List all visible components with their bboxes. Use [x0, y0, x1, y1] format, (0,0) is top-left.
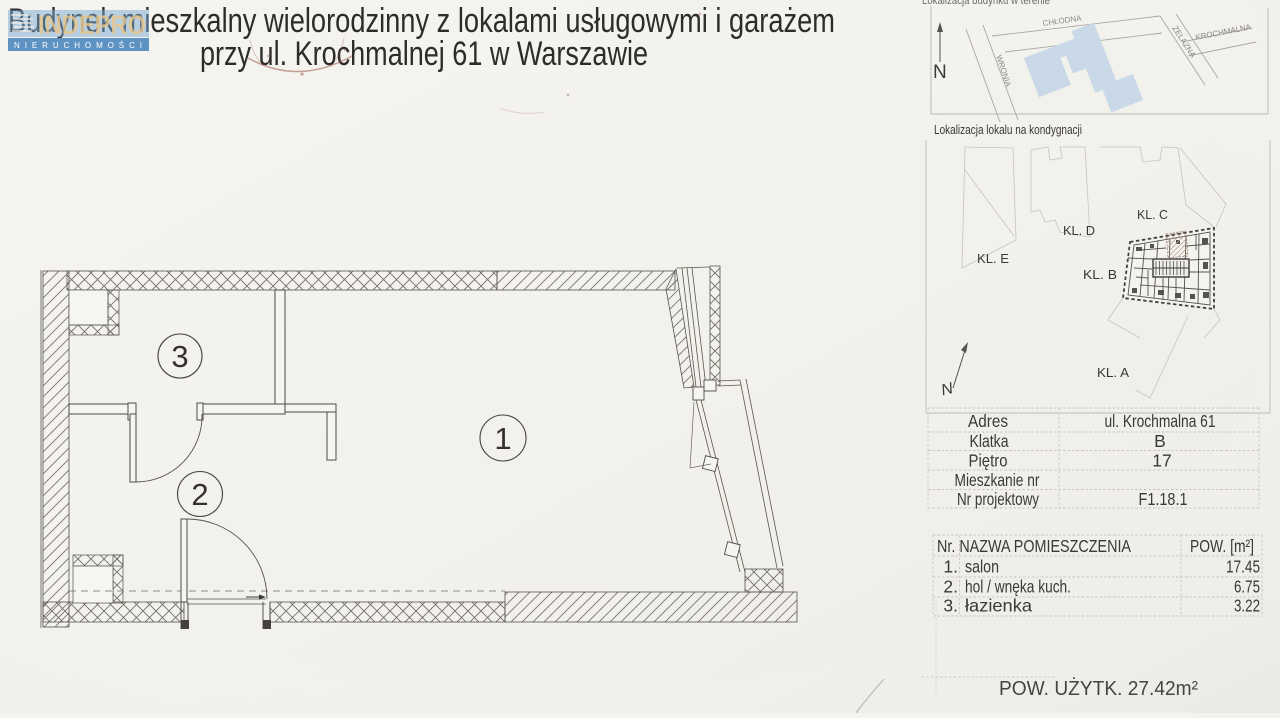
svg-text:Lokalizacja budynku w terenie: Lokalizacja budynku w terenie — [922, 0, 1050, 7]
svg-text:Lokalizacja lokalu na kondygna: Lokalizacja lokalu na kondygnacji — [934, 123, 1082, 137]
svg-text:KL. B: KL. B — [1083, 267, 1117, 282]
svg-text:17.45: 17.45 — [1226, 557, 1260, 577]
svg-text:salon: salon — [965, 557, 999, 577]
svg-text:2.: 2. — [943, 577, 958, 597]
svg-text:Mieszkanie nr: Mieszkanie nr — [955, 470, 1040, 490]
svg-text:KL. C: KL. C — [1137, 207, 1168, 222]
svg-text:INDEPRO: INDEPRO — [38, 10, 146, 40]
svg-text:Piętro: Piętro — [969, 451, 1008, 471]
svg-text:Nr projektowy: Nr projektowy — [957, 489, 1039, 509]
svg-text:KL. D: KL. D — [1063, 223, 1095, 238]
svg-text:hol / wnęka kuch.: hol / wnęka kuch. — [965, 577, 1071, 597]
svg-text:łazienka: łazienka — [965, 596, 1032, 616]
svg-text:NIERUCHOMOŚCI: NIERUCHOMOŚCI — [14, 41, 142, 50]
svg-text:B: B — [1154, 431, 1166, 451]
svg-text:KL. E: KL. E — [977, 251, 1009, 266]
svg-text:N: N — [933, 62, 947, 83]
svg-text:Klatka: Klatka — [970, 431, 1009, 451]
svg-text:ul. Krochmalna 61: ul. Krochmalna 61 — [1105, 411, 1216, 431]
svg-text:Nr. NAZWA POMIESZCZENIA: Nr. NAZWA POMIESZCZENIA — [937, 536, 1131, 556]
svg-text:6.75: 6.75 — [1234, 577, 1260, 597]
svg-text:F1.18.1: F1.18.1 — [1139, 489, 1188, 509]
svg-text:1.: 1. — [943, 557, 958, 577]
svg-text:3.: 3. — [943, 596, 958, 616]
svg-text:2: 2 — [191, 477, 208, 512]
svg-text:3: 3 — [171, 339, 188, 374]
svg-text:1: 1 — [494, 421, 511, 456]
svg-text:KL. A: KL. A — [1097, 365, 1129, 380]
svg-text:POW. UŻYTK. 27.42m²: POW. UŻYTK. 27.42m² — [999, 677, 1198, 700]
svg-text:3.22: 3.22 — [1234, 596, 1260, 616]
svg-text:17: 17 — [1152, 451, 1171, 471]
svg-text:Adres: Adres — [968, 411, 1008, 431]
svg-text:POW. [m²]: POW. [m²] — [1190, 536, 1254, 556]
